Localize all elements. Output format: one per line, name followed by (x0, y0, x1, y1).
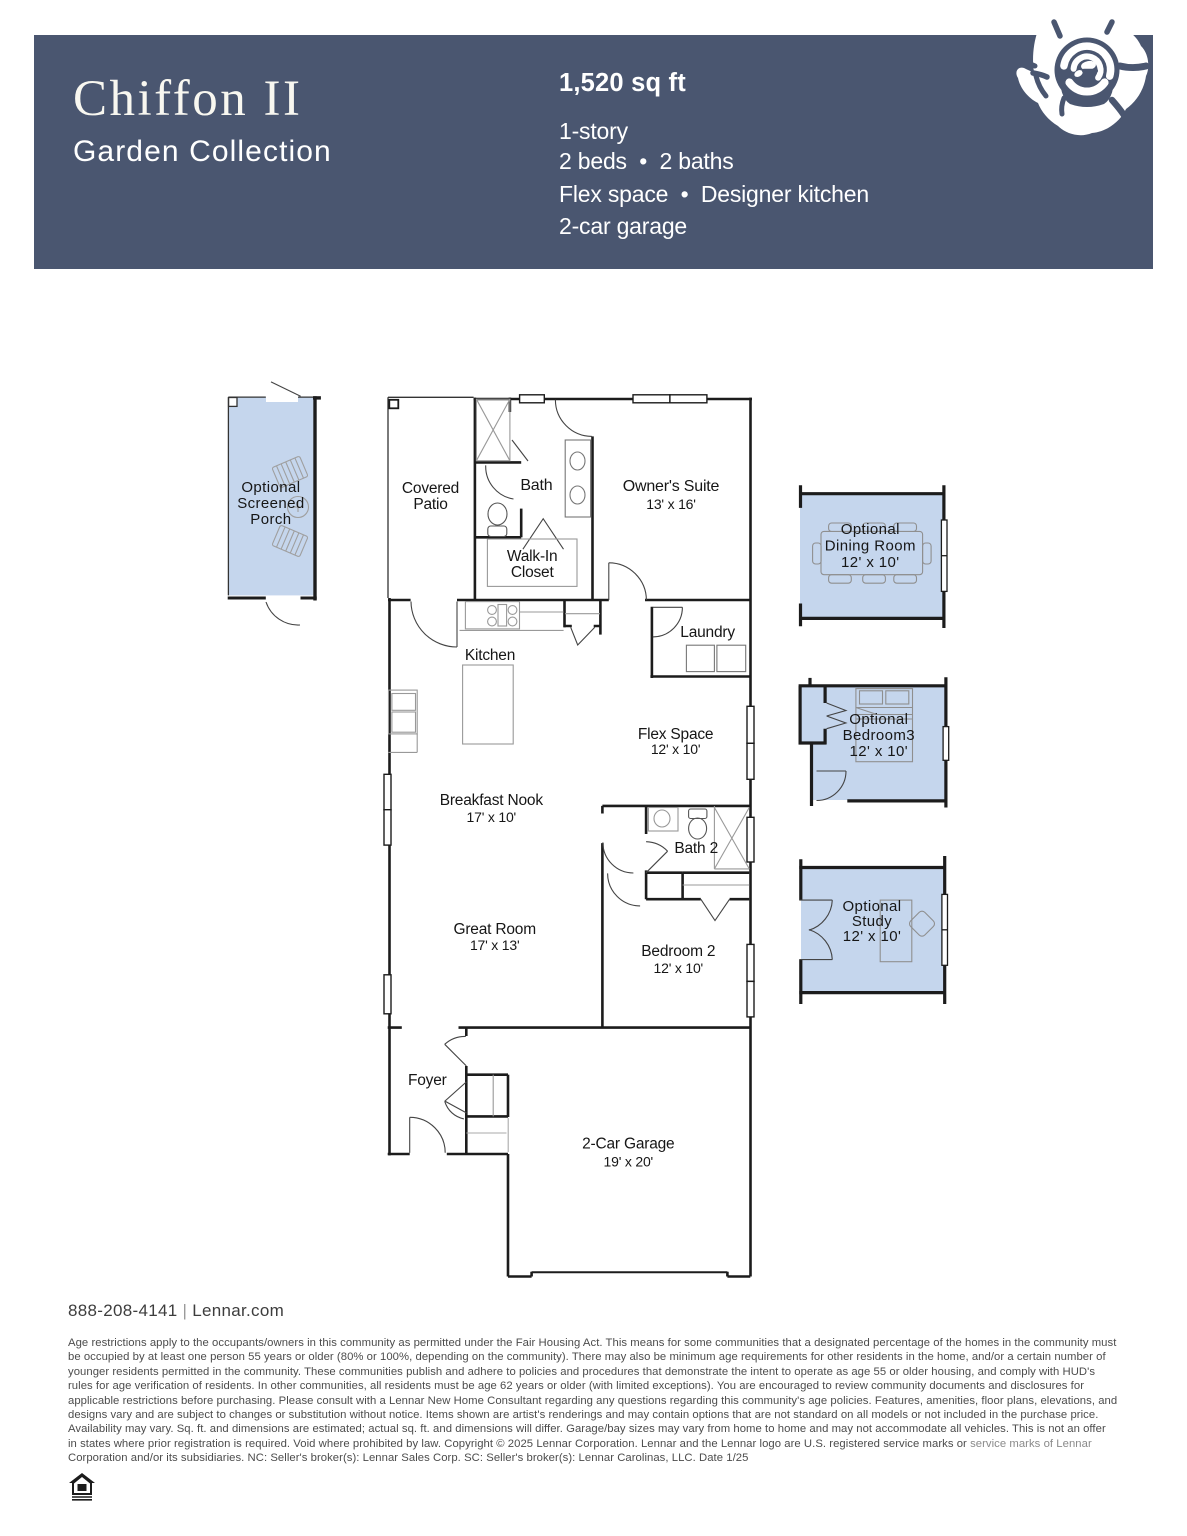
svg-text:Bath 2: Bath 2 (674, 840, 718, 857)
svg-text:Covered: Covered (402, 480, 459, 497)
svg-text:Porch: Porch (250, 511, 291, 528)
svg-text:12' x 10': 12' x 10' (841, 554, 900, 571)
svg-text:Laundry: Laundry (680, 624, 735, 641)
svg-text:17' x 10': 17' x 10' (467, 809, 516, 825)
svg-text:Foyer: Foyer (408, 1072, 447, 1089)
svg-text:Great Room: Great Room (453, 921, 535, 938)
svg-text:Bath: Bath (520, 477, 552, 494)
svg-text:Screened: Screened (237, 495, 304, 512)
svg-text:Optional: Optional (849, 711, 908, 728)
svg-text:Breakfast Nook: Breakfast Nook (440, 792, 544, 809)
svg-text:Optional: Optional (841, 521, 900, 538)
svg-text:Walk-In: Walk-In (507, 548, 558, 565)
svg-text:13' x 16': 13' x 16' (646, 496, 695, 512)
svg-text:2-Car Garage: 2-Car Garage (582, 1136, 674, 1153)
svg-text:Optional: Optional (241, 479, 300, 496)
svg-text:12' x 10': 12' x 10' (850, 743, 909, 760)
svg-text:12' x 10': 12' x 10' (654, 960, 703, 976)
svg-text:Owner's Suite: Owner's Suite (623, 478, 720, 495)
svg-text:Dining Room: Dining Room (825, 538, 916, 555)
svg-text:Patio: Patio (413, 496, 447, 513)
svg-text:19' x 20': 19' x 20' (604, 1153, 653, 1169)
svg-text:Kitchen: Kitchen (465, 647, 515, 664)
svg-text:17' x 13': 17' x 13' (470, 937, 519, 953)
svg-text:12' x 10': 12' x 10' (843, 928, 902, 945)
svg-text:Closet: Closet (511, 564, 555, 581)
svg-text:Bedroom3: Bedroom3 (843, 727, 915, 744)
svg-text:Bedroom 2: Bedroom 2 (641, 943, 715, 960)
svg-text:12' x 10': 12' x 10' (651, 741, 700, 757)
